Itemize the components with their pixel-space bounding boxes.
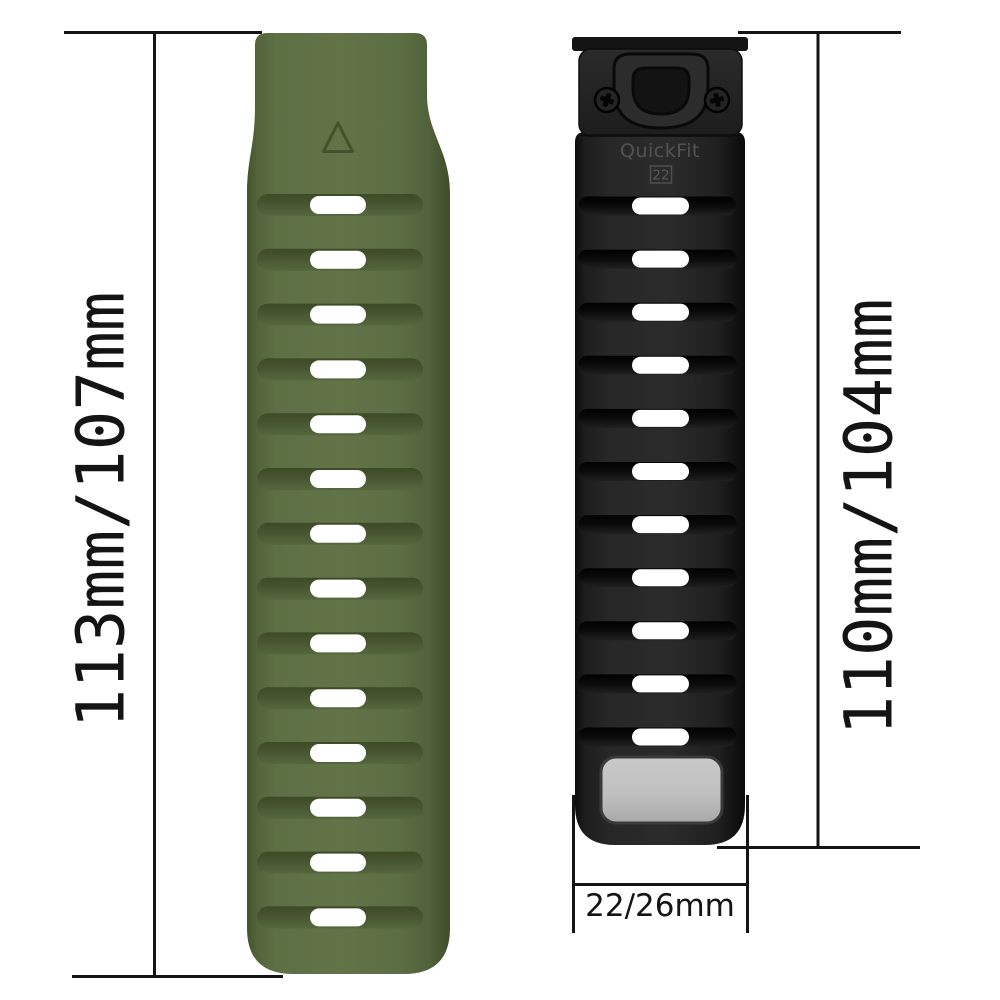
- band-hole: [632, 622, 689, 639]
- left-dimension-label: 113mm/107mm: [63, 291, 140, 728]
- latch-inner: [633, 68, 689, 114]
- band-hole: [310, 744, 366, 762]
- band-hole: [310, 525, 366, 543]
- band-hole: [310, 360, 366, 378]
- band-hole: [632, 357, 689, 374]
- band-hole: [310, 908, 366, 926]
- band-hole: [310, 415, 366, 433]
- band-hole: [310, 799, 366, 817]
- width-dimension-label: 22/26mm: [585, 888, 735, 924]
- band-hole: [632, 410, 689, 427]
- band-hole: [310, 854, 366, 872]
- black-band: QuickFit 22: [572, 37, 748, 845]
- band-hole: [310, 580, 366, 598]
- band-hole: [632, 675, 689, 692]
- right-dimension-label: 110mm/104mm: [831, 298, 908, 735]
- band-hole: [632, 251, 689, 268]
- size-badge-label: 22: [652, 168, 669, 184]
- band-hole: [632, 304, 689, 321]
- steel-plate: [601, 757, 722, 823]
- connector-plate-seam: [581, 134, 740, 137]
- band-hole: [310, 634, 366, 652]
- band-hole: [632, 516, 689, 533]
- diagram-svg: 113mm/107mm 110mm/104mm: [0, 0, 1000, 1000]
- quickfit-brand-label: QuickFit: [620, 140, 700, 162]
- right-length-dimension: 110mm/104mm: [717, 31, 920, 849]
- band-hole: [310, 306, 366, 324]
- band-hole: [310, 470, 366, 488]
- quickfit-connector: [572, 37, 748, 137]
- band-hole: [632, 569, 689, 586]
- watch-band-size-diagram: 113mm/107mm 110mm/104mm: [0, 0, 1000, 1000]
- band-hole: [310, 251, 366, 269]
- band-hole: [632, 463, 689, 480]
- band-hole: [632, 729, 689, 746]
- green-band-body: [247, 33, 450, 974]
- green-band: [247, 33, 450, 974]
- band-hole: [310, 196, 366, 214]
- band-hole: [632, 198, 689, 215]
- size-badge: 22: [651, 166, 672, 184]
- band-hole: [310, 689, 366, 707]
